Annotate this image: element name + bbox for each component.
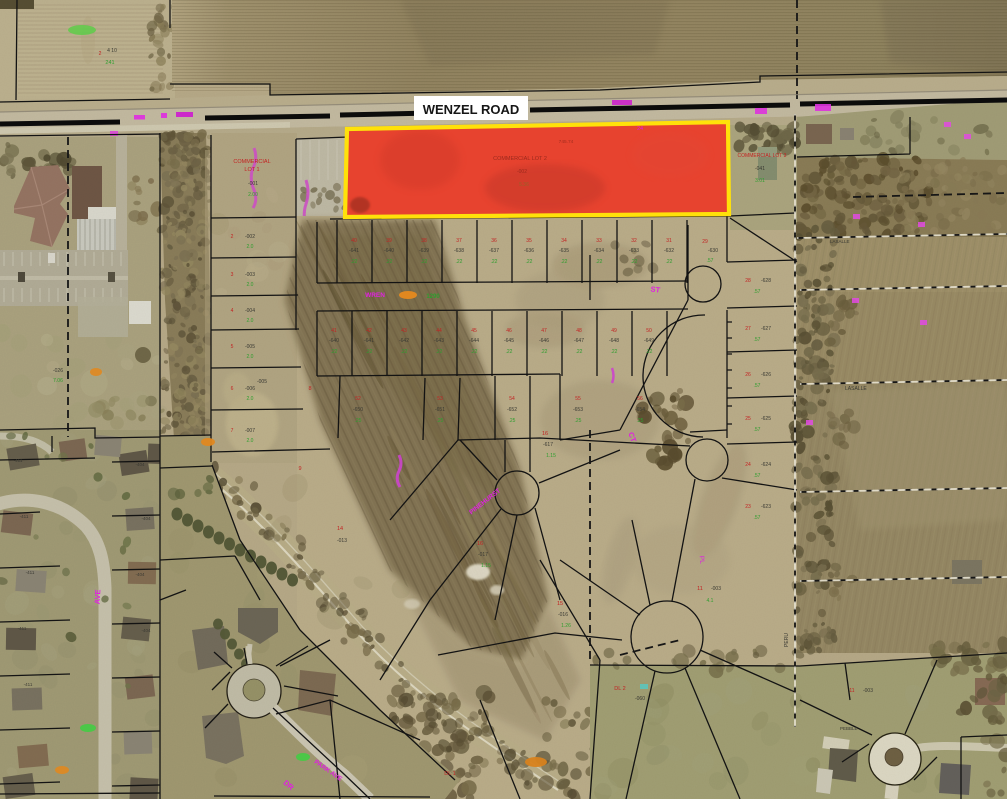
svg-text:11: 11 (697, 586, 703, 592)
svg-text:41: 41 (331, 328, 337, 334)
svg-text:-404: -404 (141, 628, 151, 633)
svg-text:3: 3 (231, 272, 234, 278)
svg-text:LASALLE: LASALLE (845, 386, 867, 392)
svg-text:-411: -411 (20, 514, 29, 519)
svg-text:.22: .22 (576, 349, 583, 355)
svg-text:-001: -001 (248, 181, 258, 187)
svg-text:43: 43 (401, 328, 407, 334)
svg-text:LOT 1: LOT 1 (244, 167, 259, 173)
svg-text:8: 8 (308, 386, 311, 392)
svg-text:6: 6 (231, 386, 234, 392)
svg-text:40: 40 (351, 238, 357, 244)
svg-text:52: 52 (355, 396, 361, 402)
svg-text:2.0: 2.0 (247, 282, 254, 288)
svg-text:-648: -648 (609, 338, 619, 344)
svg-text:WREN: WREN (365, 292, 385, 299)
svg-text:.22: .22 (526, 259, 533, 265)
svg-text:.22: .22 (631, 259, 638, 265)
svg-text:23: 23 (745, 504, 751, 510)
svg-text:-640: -640 (329, 338, 339, 344)
svg-text:-627: -627 (761, 326, 771, 332)
svg-text:26: 26 (745, 372, 751, 378)
svg-text:-006: -006 (245, 386, 255, 392)
svg-text:-633: -633 (629, 248, 639, 254)
svg-text:55: 55 (575, 396, 581, 402)
svg-text:-003: -003 (863, 688, 873, 694)
svg-text:LASALLE: LASALLE (830, 239, 850, 244)
svg-text:WENZEL ROAD: WENZEL ROAD (423, 102, 520, 117)
svg-text:.22: .22 (541, 349, 548, 355)
svg-text:4: 4 (231, 308, 234, 314)
svg-text:COMMERCIAL LOT 2: COMMERCIAL LOT 2 (493, 156, 547, 162)
svg-text:.22: .22 (421, 259, 428, 265)
svg-text:1.26: 1.26 (561, 623, 571, 629)
svg-text:.25: .25 (575, 418, 582, 424)
svg-text:-404: -404 (141, 516, 151, 521)
svg-text:-625: -625 (761, 416, 771, 422)
svg-text:-411: -411 (26, 570, 35, 575)
svg-text:-017: -017 (478, 552, 488, 558)
svg-text:.22: .22 (351, 259, 358, 265)
svg-text:.22: .22 (611, 349, 618, 355)
svg-text:.22: .22 (491, 259, 498, 265)
svg-text:-632: -632 (664, 248, 674, 254)
svg-text:34: 34 (561, 238, 567, 244)
svg-text:50: 50 (646, 328, 652, 334)
svg-text:DL 1: DL 1 (444, 771, 455, 777)
svg-text:-644: -644 (469, 338, 479, 344)
svg-text:42: 42 (366, 328, 372, 334)
svg-text:54: 54 (509, 396, 515, 402)
svg-text:-003: -003 (711, 586, 721, 592)
svg-text:2: 2 (231, 234, 234, 240)
svg-text:.57: .57 (754, 515, 761, 521)
svg-text:-013: -013 (337, 538, 347, 544)
svg-text:.22: .22 (386, 259, 393, 265)
svg-text:-654: -654 (635, 407, 645, 413)
svg-text:.22: .22 (596, 259, 603, 265)
svg-text:1.15: 1.15 (481, 563, 491, 569)
svg-text:47: 47 (541, 328, 547, 334)
svg-text:28: 28 (745, 278, 751, 284)
svg-text:44: 44 (436, 328, 442, 334)
svg-text:.22: .22 (456, 259, 463, 265)
svg-text:-005: -005 (245, 344, 255, 350)
svg-text:-640: -640 (384, 248, 394, 254)
svg-text:16: 16 (542, 431, 548, 437)
svg-text:-026: -026 (53, 368, 63, 374)
svg-text:-016: -016 (558, 612, 568, 618)
svg-text:2.0: 2.0 (247, 396, 254, 402)
svg-text:COMMERCIAL: COMMERCIAL (233, 159, 270, 165)
svg-text:.22: .22 (401, 349, 408, 355)
svg-text:4.1: 4.1 (707, 598, 714, 604)
svg-text:-639: -639 (419, 248, 429, 254)
svg-text:DL 2: DL 2 (614, 686, 625, 692)
svg-text:-637: -637 (489, 248, 499, 254)
svg-text:.25: .25 (509, 418, 516, 424)
svg-text:-645: -645 (504, 338, 514, 344)
svg-text:-642: -642 (399, 338, 409, 344)
svg-text:PL: PL (698, 556, 706, 565)
svg-text:-404: -404 (135, 572, 145, 577)
svg-text:PEBBLE: PEBBLE (840, 726, 858, 731)
svg-text:-404: -404 (135, 462, 145, 467)
svg-text:37: 37 (456, 238, 462, 244)
svg-text:31: 31 (666, 238, 672, 244)
svg-text:-647: -647 (574, 338, 584, 344)
svg-text:24: 24 (745, 462, 751, 468)
svg-text:-652: -652 (507, 407, 517, 413)
svg-text:-635: -635 (559, 248, 569, 254)
svg-text:-636: -636 (524, 248, 534, 254)
svg-text:-617: -617 (543, 442, 553, 448)
svg-text:.22: .22 (646, 349, 653, 355)
svg-text:.22: .22 (436, 349, 443, 355)
svg-text:AVE: AVE (93, 589, 103, 604)
svg-text:-641: -641 (349, 248, 359, 254)
svg-text:COMMERCIAL LOT 3: COMMERCIAL LOT 3 (738, 153, 787, 159)
svg-text:-007: -007 (245, 428, 255, 434)
svg-text:.22: .22 (506, 349, 513, 355)
svg-text:35: 35 (526, 238, 532, 244)
svg-text:5.36: 5.36 (519, 182, 529, 188)
svg-text:.25: .25 (637, 418, 644, 424)
svg-text:.22: .22 (561, 259, 568, 265)
svg-text:1290: 1290 (426, 294, 440, 300)
svg-text:.57: .57 (754, 473, 761, 479)
svg-text:-004: -004 (245, 308, 255, 314)
svg-text:-060: -060 (635, 696, 645, 702)
svg-text:-628: -628 (761, 278, 771, 284)
svg-text:33: 33 (596, 238, 602, 244)
svg-text:38: 38 (421, 238, 427, 244)
svg-text:45: 45 (471, 328, 477, 334)
svg-text:48: 48 (576, 328, 582, 334)
svg-text:-411: -411 (18, 626, 27, 631)
svg-text:15: 15 (557, 601, 563, 607)
svg-text:241: 241 (105, 60, 114, 66)
svg-text:27: 27 (745, 326, 751, 332)
svg-text:25: 25 (745, 416, 751, 422)
svg-text:-650: -650 (353, 407, 363, 413)
svg-text:-041: -041 (755, 166, 765, 172)
svg-text:2.0: 2.0 (247, 318, 254, 324)
svg-text:2.0: 2.0 (247, 438, 254, 444)
svg-text:-002: -002 (245, 234, 255, 240)
svg-text:9: 9 (298, 466, 301, 472)
svg-text:.57: .57 (754, 289, 761, 295)
svg-text:ST: ST (650, 284, 661, 294)
svg-text:-411: -411 (14, 458, 23, 463)
svg-text:36: 36 (491, 238, 497, 244)
svg-text:-653: -653 (573, 407, 583, 413)
svg-text:46: 46 (506, 328, 512, 334)
svg-text:7: 7 (231, 428, 234, 434)
svg-text:11: 11 (849, 688, 854, 694)
svg-text:-649: -649 (644, 338, 654, 344)
svg-text:.57: .57 (754, 427, 761, 433)
svg-text:-646: -646 (539, 338, 549, 344)
svg-text:-643: -643 (434, 338, 444, 344)
svg-text:.22: .22 (666, 259, 673, 265)
svg-text:745.74: 745.74 (559, 139, 574, 145)
svg-text:2: 2 (99, 51, 102, 57)
svg-text:.22: .22 (471, 349, 478, 355)
svg-text:PERU: PERU (784, 633, 790, 647)
svg-text:4 10: 4 10 (107, 48, 117, 54)
svg-text:16: 16 (477, 541, 483, 547)
svg-text:-626: -626 (761, 372, 771, 378)
svg-text:2.0: 2.0 (247, 354, 254, 360)
svg-text:-005: -005 (257, 379, 267, 385)
svg-text:-411: -411 (24, 682, 33, 687)
svg-text:-641: -641 (364, 338, 374, 344)
svg-text:.25: .25 (355, 418, 362, 424)
svg-text:29: 29 (702, 239, 708, 245)
svg-text:56: 56 (637, 396, 643, 402)
svg-text:32: 32 (631, 238, 637, 244)
svg-text:-623: -623 (761, 504, 771, 510)
svg-text:-002: -002 (517, 169, 527, 175)
svg-text:-634: -634 (594, 248, 604, 254)
svg-text:1.15: 1.15 (546, 453, 556, 459)
svg-text:.22: .22 (331, 349, 338, 355)
svg-text:-638: -638 (454, 248, 464, 254)
svg-text:.57: .57 (754, 337, 761, 343)
svg-text:-003: -003 (245, 272, 255, 278)
svg-text:2.00: 2.00 (248, 192, 258, 198)
svg-text:24: 24 (637, 126, 643, 132)
svg-text:.22: .22 (366, 349, 373, 355)
svg-text:-624: -624 (761, 462, 771, 468)
svg-text:.25: .25 (437, 418, 444, 424)
svg-text:49: 49 (611, 328, 617, 334)
svg-text:39: 39 (386, 238, 392, 244)
svg-text:-630: -630 (708, 248, 718, 254)
svg-text:3.01: 3.01 (755, 178, 765, 184)
svg-text:.57: .57 (754, 383, 761, 389)
svg-text:14: 14 (337, 526, 343, 532)
svg-text:-651: -651 (435, 407, 445, 413)
svg-text:2.0: 2.0 (247, 244, 254, 250)
svg-text:7.06: 7.06 (53, 378, 63, 384)
svg-text:53: 53 (437, 396, 443, 402)
svg-text:5: 5 (231, 344, 234, 350)
svg-text:.57: .57 (707, 258, 714, 264)
